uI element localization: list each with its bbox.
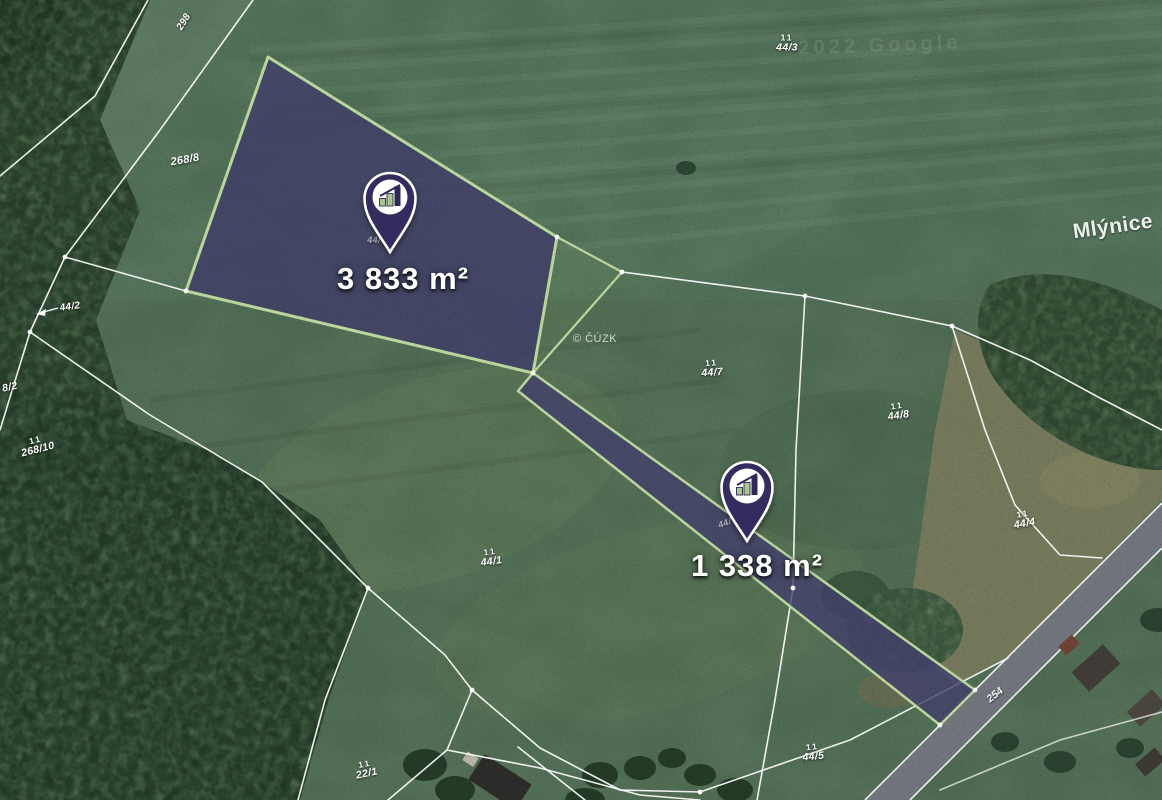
map-pin[interactable] bbox=[360, 167, 420, 255]
map-pin[interactable] bbox=[717, 456, 777, 544]
aerial-map: 298268/844/28/211268/101144/31144/71144/… bbox=[0, 0, 1162, 800]
aerial-basemap bbox=[0, 0, 1162, 800]
grain-overlay bbox=[0, 0, 1162, 800]
